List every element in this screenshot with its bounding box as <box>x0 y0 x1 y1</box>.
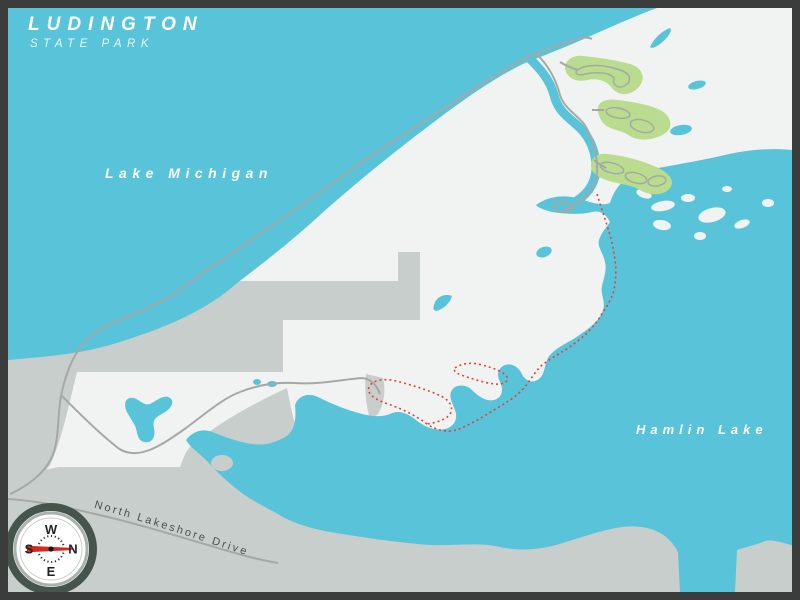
lake-island-gray <box>211 455 233 471</box>
compass-rose: W S N E <box>9 507 93 591</box>
compass-pivot <box>48 546 53 551</box>
compass-top-letter: W <box>45 522 58 537</box>
hamlin-lake-label: Hamlin Lake <box>636 422 768 437</box>
compass-left-letter: S <box>25 542 34 557</box>
park-title: LUDINGTON <box>28 14 204 35</box>
compass-bottom-letter: E <box>47 564 56 579</box>
map-canvas: LUDINGTON STATE PARK Lake Michigan Hamli… <box>0 0 800 600</box>
park-map: LUDINGTON STATE PARK Lake Michigan Hamli… <box>0 0 800 600</box>
compass-right-letter: N <box>68 542 77 557</box>
lake-michigan-label: Lake Michigan <box>105 165 273 181</box>
park-subtitle: STATE PARK <box>30 38 154 50</box>
